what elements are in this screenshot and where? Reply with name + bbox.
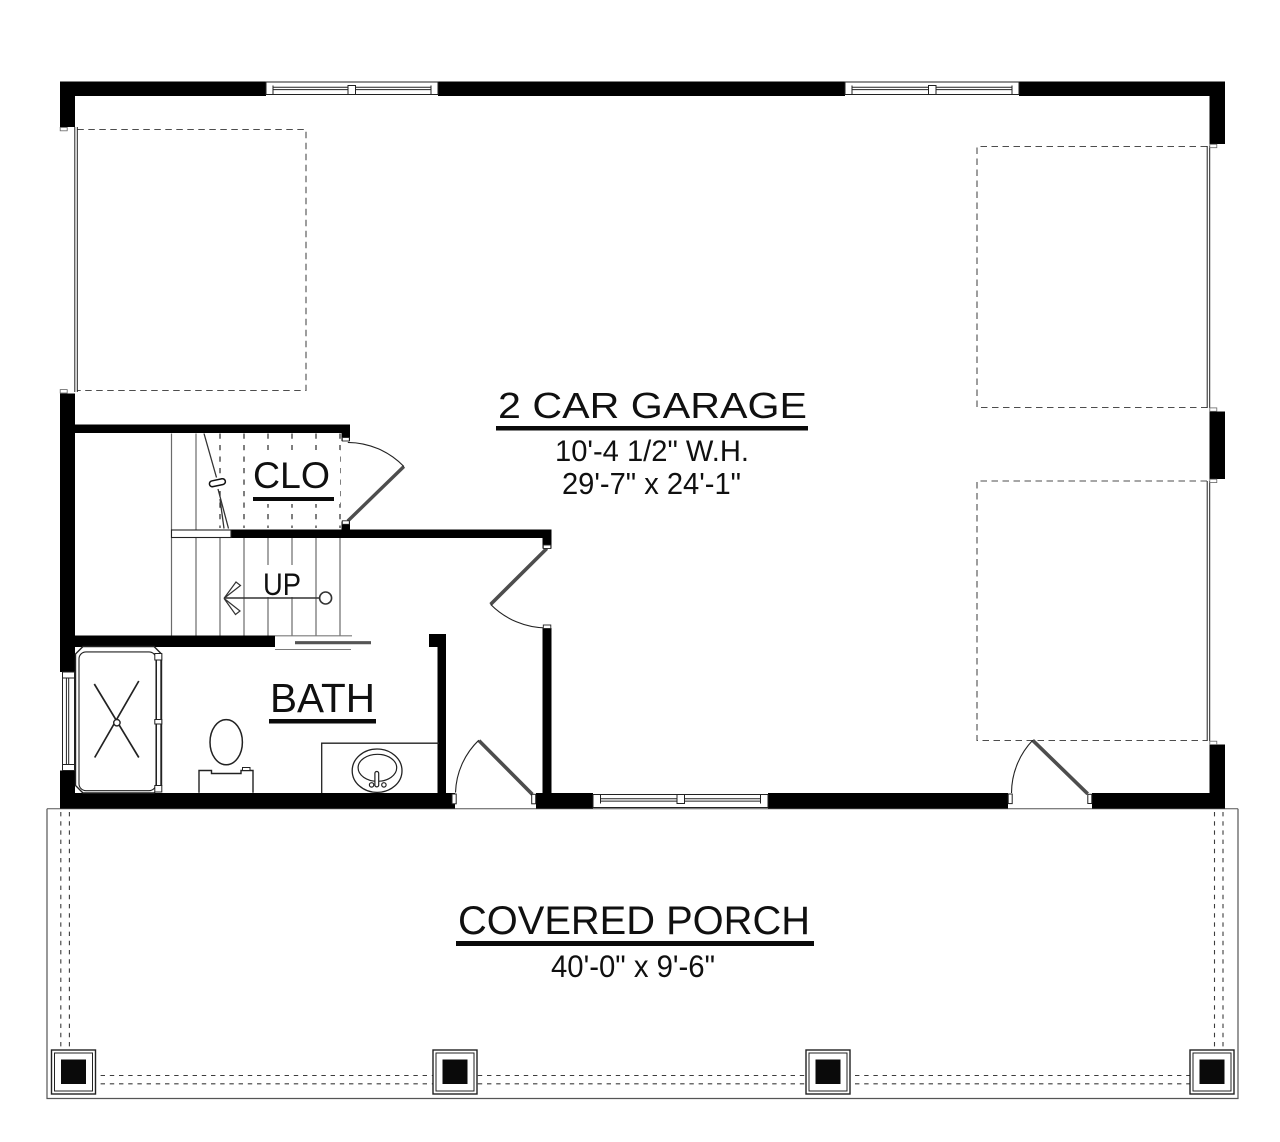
svg-text:29'-7" x 24'-1": 29'-7" x 24'-1" [562, 466, 741, 501]
svg-text:BATH: BATH [270, 675, 375, 721]
svg-text:40'-0" x 9'-6": 40'-0" x 9'-6" [551, 948, 715, 984]
svg-text:COVERED PORCH: COVERED PORCH [458, 899, 810, 943]
svg-text:CLO: CLO [253, 455, 330, 496]
svg-text:10'-4 1/2" W.H.: 10'-4 1/2" W.H. [555, 435, 749, 468]
svg-text:2 CAR GARAGE: 2 CAR GARAGE [498, 385, 807, 426]
svg-text:UP: UP [263, 566, 301, 602]
